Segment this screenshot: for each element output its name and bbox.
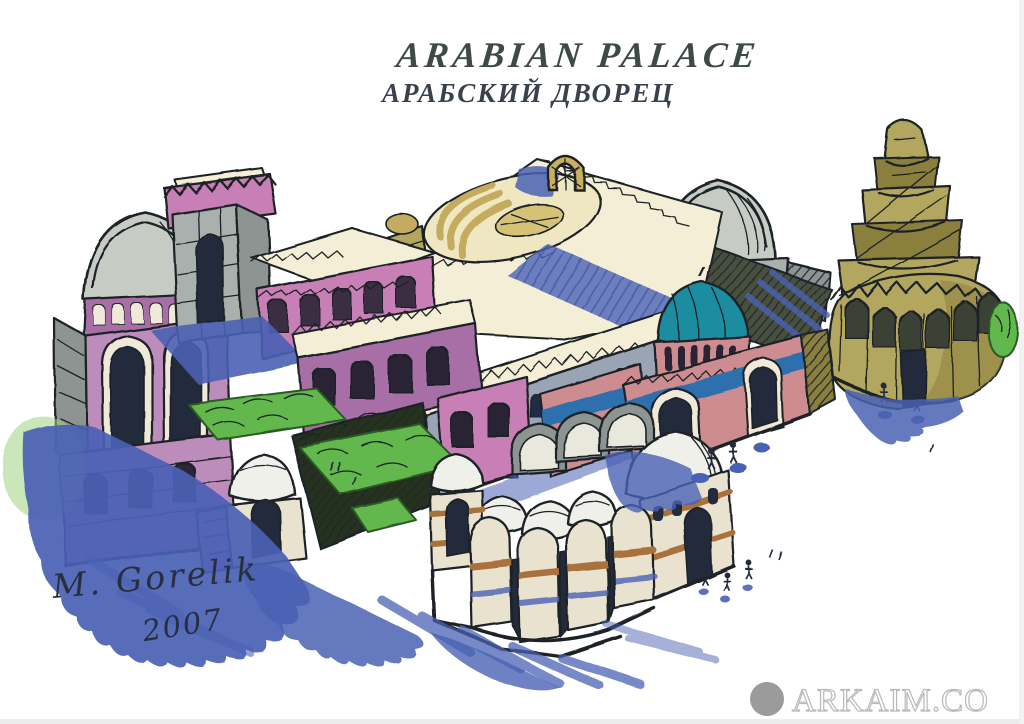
artwork-canvas: ARABIAN PALACE АРАБСКИЙ ДВОРЕЦ (0, 0, 1024, 724)
round-gallery-building (830, 274, 1018, 408)
arch-monument (549, 157, 584, 190)
watermark: Arkaim.co (746, 674, 1014, 720)
watermark-text: Arkaim.co (792, 683, 989, 719)
scan-edge-bottom (0, 719, 1024, 724)
scan-edge-right (1019, 0, 1024, 724)
watermark-dot-icon (750, 682, 784, 716)
artwork-subtitle: АРАБСКИЙ ДВОРЕЦ (382, 78, 652, 109)
artwork-title: ARABIAN PALACE (376, 34, 780, 76)
